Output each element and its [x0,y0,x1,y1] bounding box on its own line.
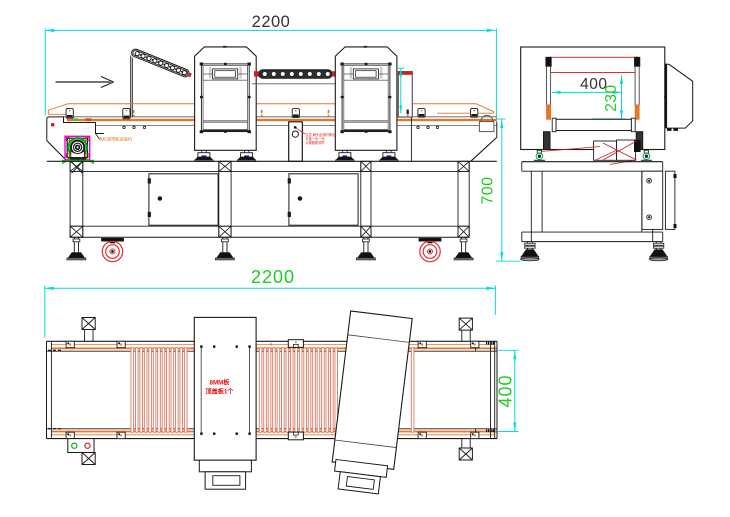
svg-text:8MM板: 8MM板 [210,378,231,386]
svg-text:电机滚筒配减速机: 电机滚筒配减速机 [99,135,133,142]
svg-text:230: 230 [603,84,620,111]
svg-text:2200: 2200 [252,13,291,31]
svg-text:顶盖板1个: 顶盖板1个 [205,387,234,395]
svg-text:700: 700 [479,176,496,204]
svg-text:2200: 2200 [251,267,295,287]
svg-text:400: 400 [496,374,516,407]
svg-text:以便膨胀调节: 以便膨胀调节 [306,140,326,145]
